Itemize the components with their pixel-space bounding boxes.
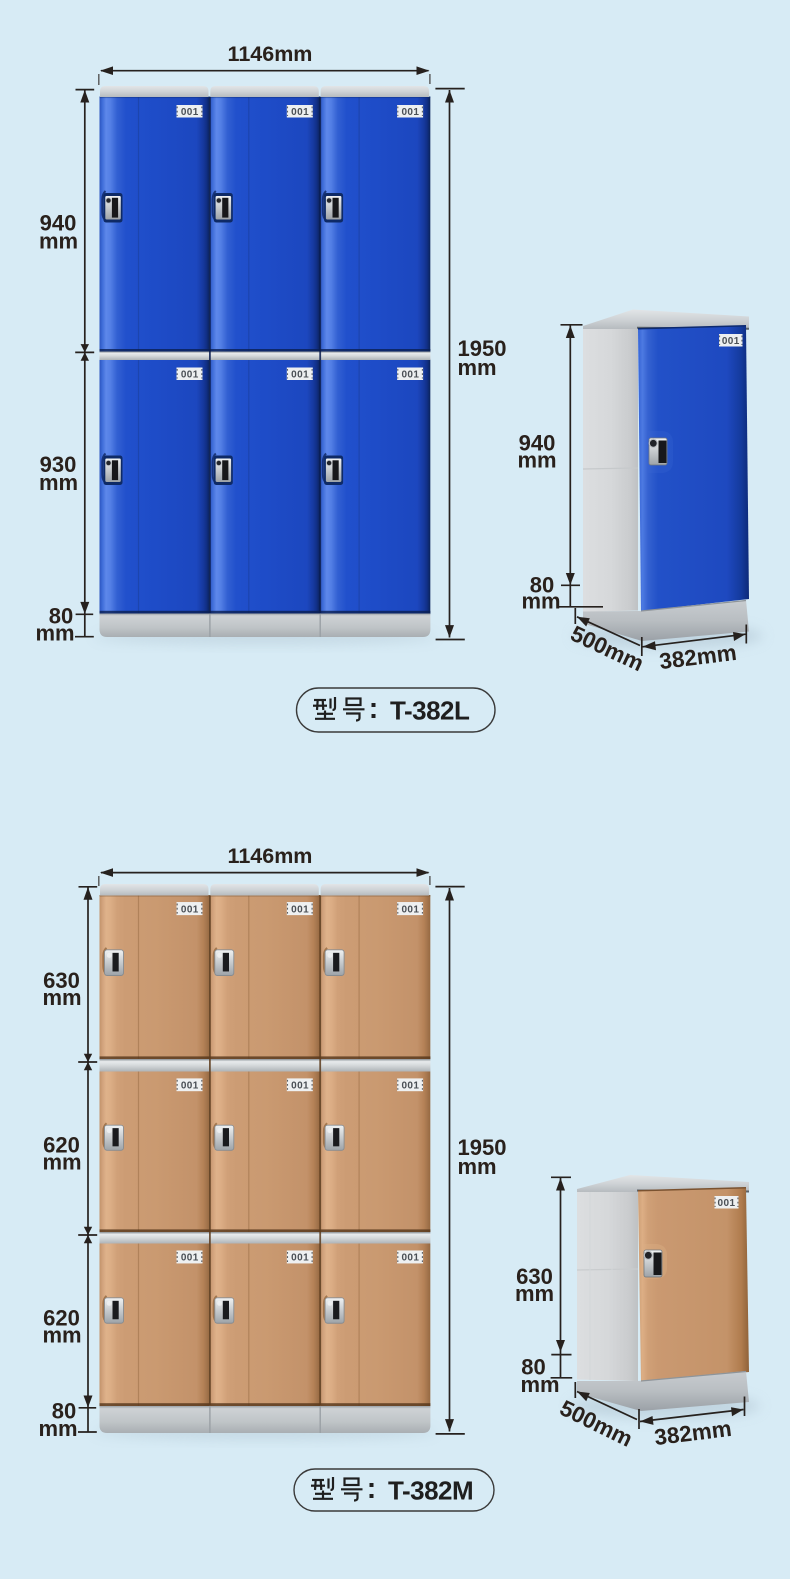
svg-text:mm: mm — [39, 470, 78, 495]
svg-text:mm: mm — [515, 1281, 554, 1306]
svg-text:mm: mm — [39, 229, 78, 254]
svg-text:T-382M: T-382M — [388, 1476, 473, 1506]
svg-text:mm: mm — [458, 1154, 497, 1179]
svg-text:mm: mm — [42, 1323, 81, 1348]
svg-text:1146mm: 1146mm — [228, 42, 313, 66]
svg-text:mm: mm — [521, 588, 560, 613]
svg-text:001: 001 — [718, 1198, 736, 1209]
svg-text:1146mm: 1146mm — [228, 844, 313, 868]
svg-text:001: 001 — [722, 336, 740, 347]
svg-text:mm: mm — [42, 985, 81, 1010]
svg-text:mm: mm — [42, 1150, 81, 1175]
svg-text:mm: mm — [35, 621, 74, 646]
svg-text:mm: mm — [520, 1372, 559, 1397]
svg-text:T-382L: T-382L — [390, 696, 470, 726]
svg-text:mm: mm — [38, 1416, 77, 1441]
svg-text:mm: mm — [458, 355, 497, 380]
svg-text:mm: mm — [517, 448, 556, 473]
